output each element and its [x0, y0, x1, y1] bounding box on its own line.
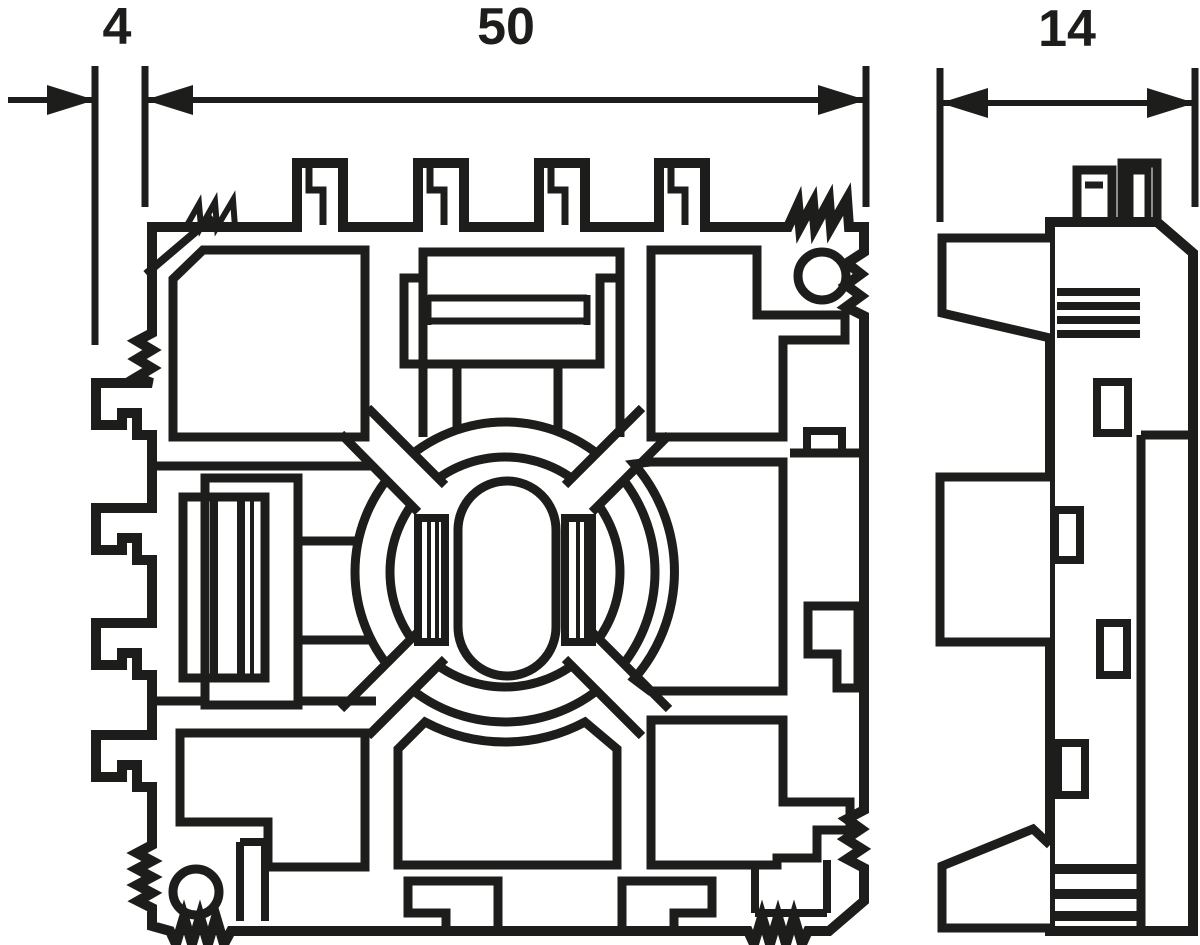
side-body	[1050, 222, 1193, 931]
dimension-50: 50	[145, 0, 866, 207]
screw-pilot-top-right	[798, 252, 846, 300]
dimension-label-4: 4	[103, 0, 132, 56]
arrowhead-right-icon	[1147, 88, 1195, 118]
chamber-top-left	[173, 250, 365, 437]
t-slot-slats	[428, 295, 587, 325]
step-channel-right	[808, 606, 858, 688]
drawing-canvas: 4 50 14	[0, 0, 1200, 945]
bottom-channel-left	[408, 881, 498, 931]
chamber-bottom-middle	[398, 722, 617, 865]
side-view	[940, 163, 1193, 931]
stadium-slot	[458, 481, 556, 676]
channel-bottom-left	[240, 842, 265, 921]
chamber-bottom-left	[180, 733, 365, 867]
technical-drawing: 4 50 14	[0, 0, 1200, 945]
castellation-tab-steps	[309, 168, 685, 225]
arrowhead-right-icon	[818, 85, 866, 115]
dimension-label-14: 14	[1038, 0, 1096, 58]
side-flange-top-wedge	[942, 238, 1050, 338]
arrowhead-right-icon	[47, 85, 95, 115]
side-flange-middle	[940, 477, 1050, 642]
bore-slot-right-lines	[578, 518, 586, 642]
arrowhead-left-icon	[940, 88, 988, 118]
slot-fins	[214, 497, 241, 678]
front-view	[96, 163, 864, 944]
side-tab-1	[1077, 170, 1112, 222]
chamber-bottom-right	[651, 720, 850, 865]
chamber-top-right	[651, 250, 845, 437]
side-tab-2-inner	[1130, 171, 1148, 222]
dimension-4: 4	[8, 0, 193, 345]
bottom-channel-right	[622, 881, 712, 931]
screw-pilot-bottom-left	[173, 869, 219, 915]
side-flange-bottom-wedge	[942, 829, 1050, 928]
dimension-label-50: 50	[477, 0, 535, 56]
